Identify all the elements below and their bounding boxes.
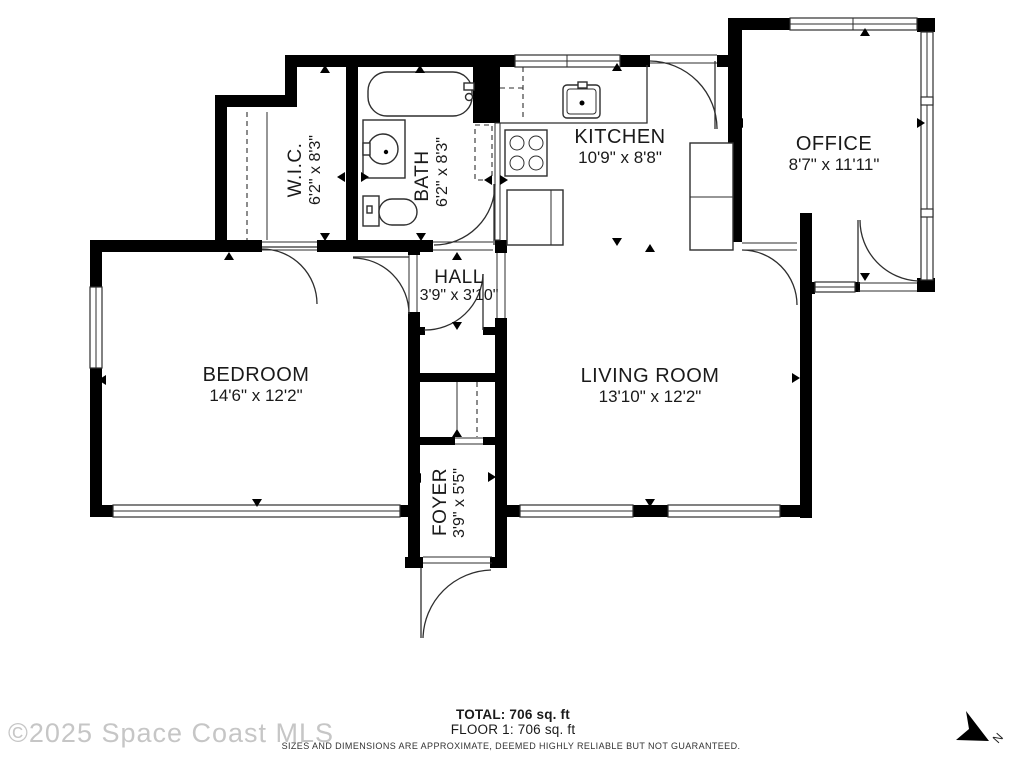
room-labels: W.I.C. 6'2" x 8'3" BATH 6'2" x 8'3" KITC… (203, 126, 880, 538)
room-dims-kitchen: 10'9" x 8'8" (578, 148, 662, 167)
bath-cabinet (475, 125, 492, 180)
wic-door (262, 247, 317, 304)
stove (505, 130, 547, 176)
floor-plan-drawing: W.I.C. 6'2" x 8'3" BATH 6'2" x 8'3" KITC… (0, 0, 1024, 768)
room-label-wic: W.I.C. (285, 143, 306, 198)
office-bottom-window (815, 282, 855, 292)
footer: TOTAL: 706 sq. ft FLOOR 1: 706 sq. ft SI… (282, 707, 741, 751)
room-dims-wic: 6'2" x 8'3" (307, 135, 324, 205)
entry-door (421, 568, 491, 638)
bedroom-door (353, 257, 409, 314)
wic-closet-rod (247, 112, 267, 240)
bath-kitchen-partition (495, 123, 500, 240)
living-room-window-left (520, 505, 633, 517)
entry-closet-rod (457, 382, 477, 437)
north-arrow-icon: N (956, 711, 1006, 746)
room-label-hall: HALL (434, 267, 484, 288)
bedroom-left-window (90, 287, 102, 368)
room-label-kitchen: KITCHEN (574, 126, 665, 148)
floor-area-text: FLOOR 1: 706 sq. ft (451, 722, 576, 737)
office-hall-door (742, 250, 797, 305)
room-dims-hall: 3'9" x 3'10" (420, 287, 499, 304)
toilet (363, 196, 417, 226)
room-dims-bedroom: 14'6" x 12'2" (209, 386, 302, 405)
refrigerator (690, 143, 733, 250)
kitchen-sink (563, 82, 600, 118)
room-label-foyer: FOYER (430, 468, 451, 536)
kitchen-window (515, 55, 620, 67)
vanity-sink (363, 120, 405, 178)
room-dims-bath: 6'2" x 8'3" (434, 137, 451, 207)
watermark-text: ©2025 Space Coast MLS (8, 718, 334, 748)
office-right-window (921, 32, 933, 280)
bedroom-bottom-window (113, 505, 400, 517)
office-top-window (790, 18, 917, 30)
bathtub (368, 72, 474, 116)
room-dims-office: 8'7" x 11'11" (789, 155, 880, 174)
floor-plan-page: W.I.C. 6'2" x 8'3" BATH 6'2" x 8'3" KITC… (0, 0, 1024, 768)
disclaimer-text: SIZES AND DIMENSIONS ARE APPROXIMATE, DE… (282, 741, 741, 751)
walls (90, 18, 935, 568)
total-area-text: TOTAL: 706 sq. ft (456, 707, 570, 722)
room-label-bedroom: BEDROOM (203, 364, 310, 386)
room-label-living-room: LIVING ROOM (581, 365, 720, 387)
kitchen-back-door (650, 61, 717, 129)
office-exterior-door (858, 220, 918, 282)
room-label-bath: BATH (412, 150, 433, 201)
kitchen-cabinet (507, 190, 563, 245)
living-room-window-right (668, 505, 780, 517)
room-label-office: OFFICE (796, 133, 872, 155)
room-dims-living-room: 13'10" x 12'2" (599, 387, 702, 406)
north-label: N (990, 730, 1006, 746)
room-dims-foyer: 3'9" x 5'5" (451, 468, 468, 538)
